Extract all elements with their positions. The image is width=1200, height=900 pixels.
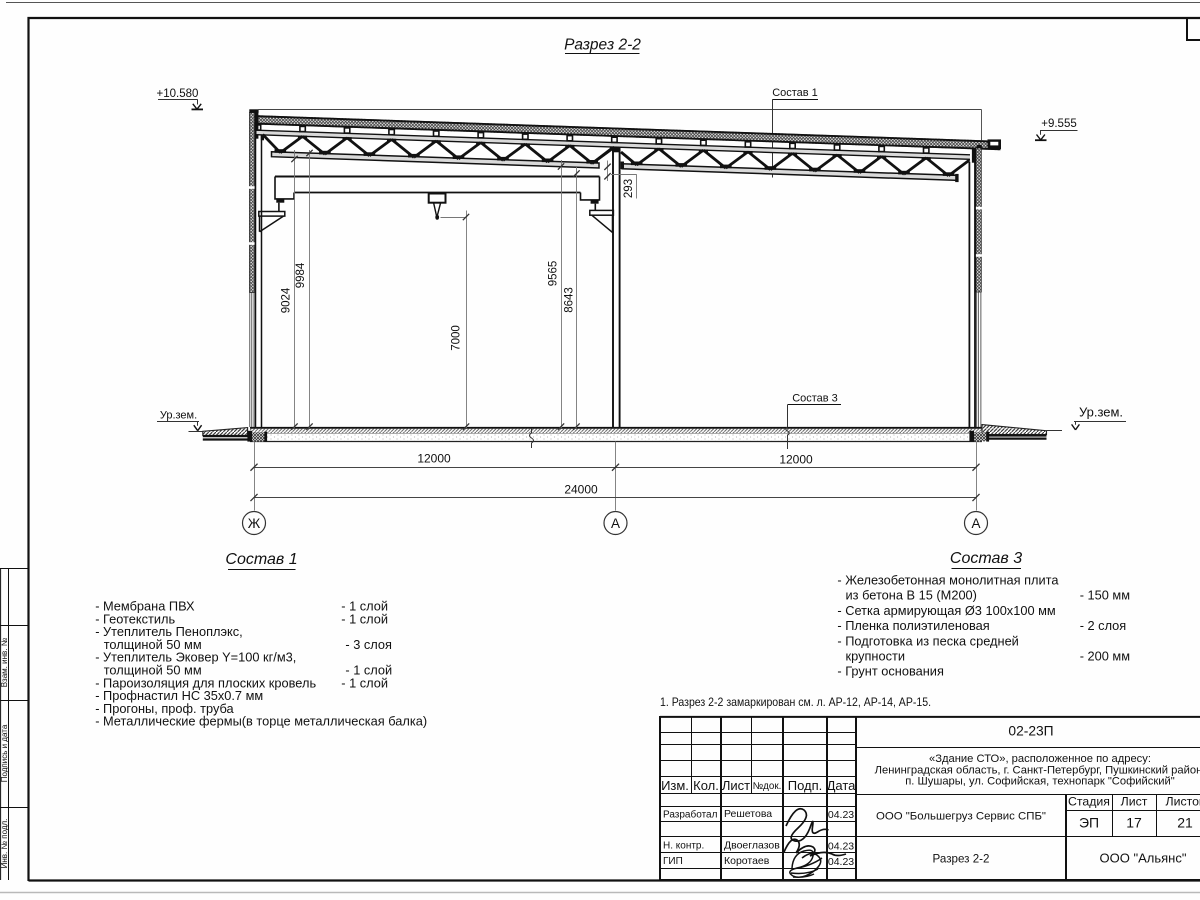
- svg-text:Состав 3: Состав 3: [792, 393, 838, 405]
- svg-text:- Подготовка из песка средней: - Подготовка из песка средней: [837, 633, 1018, 648]
- svg-text:- Пленка полиэтиленовая: - Пленка полиэтиленовая: [837, 618, 989, 633]
- svg-text:Ур.зем.: Ур.зем.: [1079, 404, 1123, 419]
- svg-text:12000: 12000: [417, 451, 451, 465]
- svg-text:Состав 1: Состав 1: [225, 551, 297, 568]
- svg-text:- 1 слой: - 1 слой: [341, 675, 388, 690]
- svg-text:21: 21: [1177, 815, 1193, 831]
- svg-text:- Сетка армирующая Ø3 100х100: - Сетка армирующая Ø3 100х100 мм: [837, 603, 1055, 618]
- svg-text:Ж: Ж: [248, 516, 261, 531]
- svg-text:9565: 9565: [548, 261, 560, 287]
- svg-text:- Железобетонная монолитная п: - Железобетонная монолитная плита: [837, 573, 1059, 588]
- svg-text:Кол.: Кол.: [693, 778, 719, 793]
- svg-text:- Грунт основания: - Грунт основания: [837, 664, 944, 679]
- svg-text:- 3 слоя: - 3 слоя: [345, 637, 392, 652]
- svg-text:+10.580: +10.580: [157, 88, 199, 100]
- svg-text:02-23П: 02-23П: [1008, 724, 1053, 739]
- svg-text:- 150 мм: - 150 мм: [1080, 588, 1130, 603]
- svg-text:- 2 слоя: - 2 слоя: [1080, 618, 1127, 633]
- svg-text:крупности: крупности: [846, 649, 906, 664]
- svg-text:Взам. инв. №: Взам. инв. №: [0, 637, 9, 687]
- svg-text:А: А: [971, 516, 980, 531]
- svg-text:п. Шушары, ул. Софийская, техн: п. Шушары, ул. Софийская, технопарк "Соф…: [905, 775, 1175, 787]
- svg-text:Двоеглазов: Двоеглазов: [724, 840, 780, 852]
- svg-text:1. Разрез 2-2 замаркирован см.: 1. Разрез 2-2 замаркирован см. л. АР-12,…: [660, 695, 931, 709]
- svg-text:- 1 слой: - 1 слой: [341, 611, 388, 626]
- svg-text:ГИП: ГИП: [663, 856, 683, 867]
- svg-text:Стадия: Стадия: [1068, 795, 1110, 809]
- svg-text:Решетова: Решетова: [724, 808, 772, 820]
- svg-text:Н. контр.: Н. контр.: [663, 841, 704, 852]
- svg-text:ООО "Альянс": ООО "Альянс": [1100, 851, 1187, 866]
- svg-text:17: 17: [1126, 815, 1142, 831]
- svg-text:24000: 24000: [564, 483, 598, 497]
- svg-text:293: 293: [623, 179, 635, 198]
- svg-text:ООО "Большегруз Сервис СПБ": ООО "Большегруз Сервис СПБ": [876, 811, 1046, 823]
- svg-text:Разрез 2-2: Разрез 2-2: [933, 853, 990, 866]
- svg-text:+9.555: +9.555: [1041, 118, 1077, 130]
- svg-text:Лист: Лист: [722, 778, 750, 793]
- svg-text:- 200 мм: - 200 мм: [1080, 649, 1130, 664]
- svg-text:А: А: [611, 516, 620, 531]
- svg-text:из бетона В 15 (М200): из бетона В 15 (М200): [846, 588, 977, 603]
- svg-text:Изм.: Изм.: [661, 778, 689, 793]
- svg-text:Лист: Лист: [1121, 795, 1148, 809]
- svg-text:7000: 7000: [451, 325, 463, 351]
- svg-text:8643: 8643: [564, 287, 576, 313]
- svg-text:04.23: 04.23: [828, 841, 854, 853]
- svg-text:Разработал: Разработал: [663, 809, 718, 821]
- svg-text:Состав 3: Состав 3: [950, 550, 1022, 567]
- svg-text:9024: 9024: [281, 287, 293, 313]
- svg-text:Инв. № подл.: Инв. № подл.: [0, 819, 9, 869]
- svg-text:Листов: Листов: [1166, 795, 1200, 809]
- svg-text:Разрез 2-2: Разрез 2-2: [564, 37, 641, 54]
- svg-text:12000: 12000: [779, 452, 813, 466]
- svg-text:№док.: №док.: [753, 781, 782, 792]
- svg-text:- Металлические фермы(в торце: - Металлические фермы(в торце металличес…: [95, 714, 427, 729]
- svg-text:04.23: 04.23: [828, 809, 854, 821]
- svg-text:«Здание СТО», расположенное по: «Здание СТО», расположенное по адресу:: [929, 753, 1151, 765]
- svg-text:Коротаев: Коротаев: [724, 855, 770, 867]
- svg-text:Дата: Дата: [827, 778, 857, 793]
- svg-text:Ур.зем.: Ур.зем.: [160, 409, 197, 421]
- svg-text:ЭП: ЭП: [1079, 815, 1099, 831]
- svg-text:04.23: 04.23: [828, 856, 854, 868]
- svg-text:Подп.: Подп.: [788, 778, 823, 793]
- svg-text:Подпись и дата: Подпись и дата: [0, 724, 9, 782]
- svg-text:9984: 9984: [295, 262, 307, 288]
- svg-text:Состав 1: Состав 1: [772, 87, 818, 99]
